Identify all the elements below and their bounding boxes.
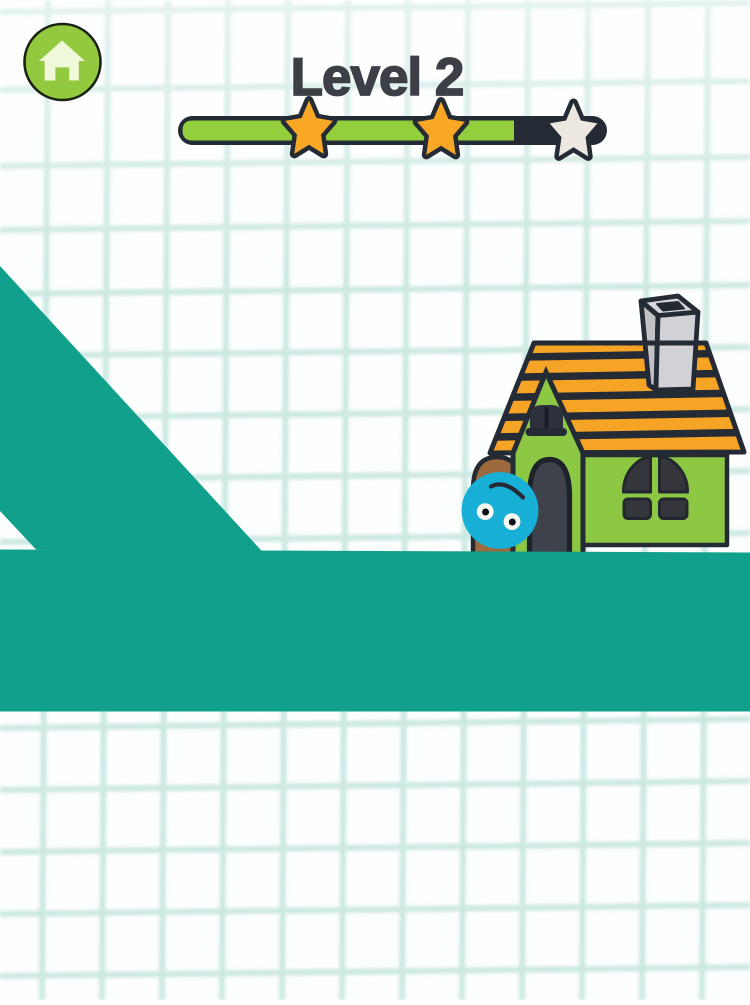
svg-text:Level 2: Level 2 (291, 48, 464, 107)
